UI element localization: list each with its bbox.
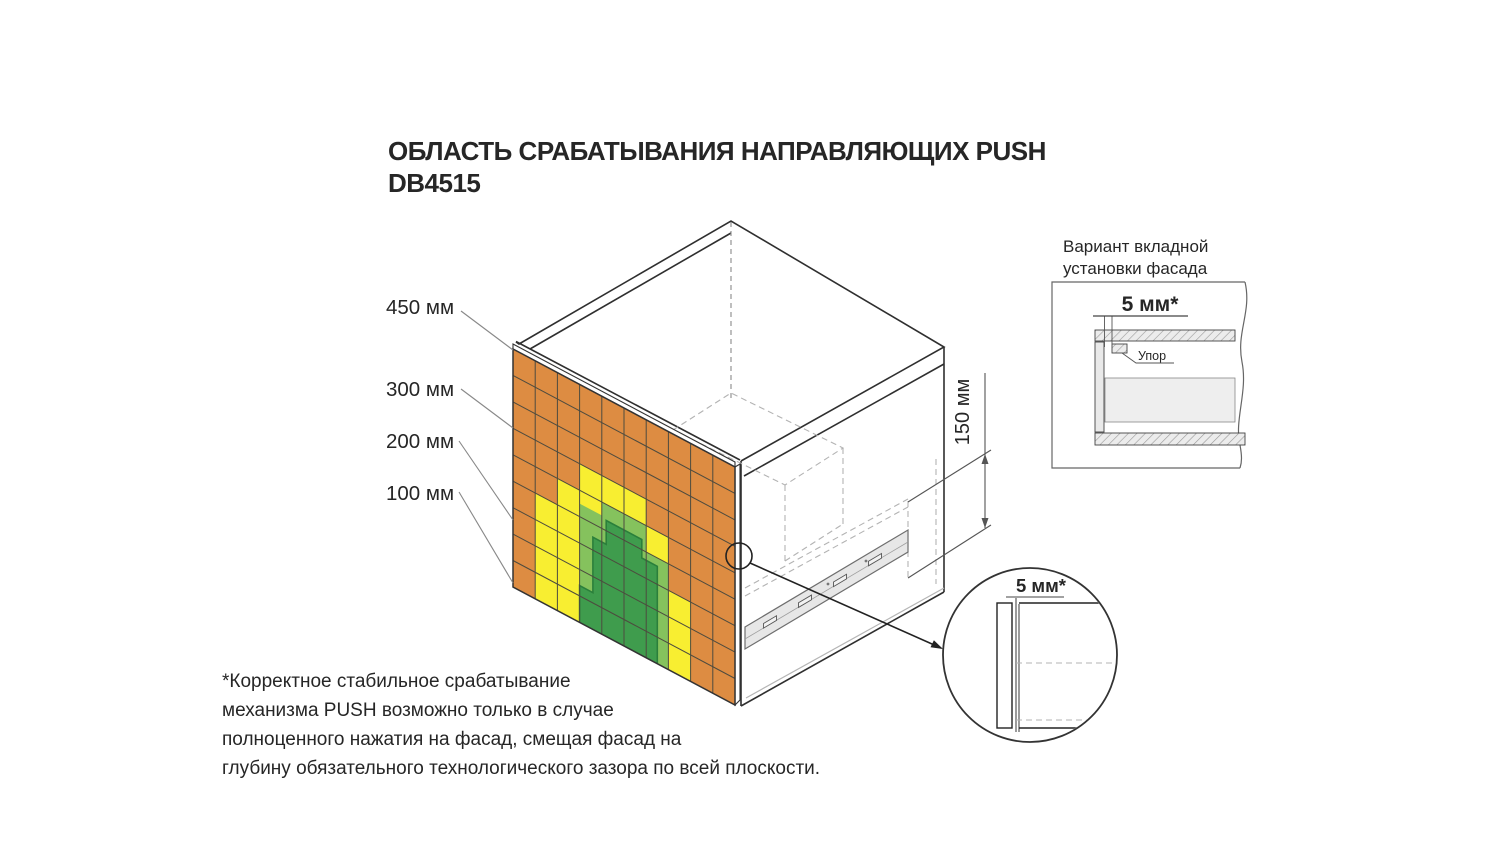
cabinet-top-inner-left-edge [530,233,731,349]
inset-stop-block [1112,344,1127,353]
cabinet-top-inner-right-edge [744,364,944,476]
arrow-down [982,518,989,528]
inset-facade-panel [1095,342,1104,432]
drawer-slide [745,530,908,649]
cabinet-bottom-right-edge [741,592,944,706]
inset-title-line2: установки фасада [1063,259,1208,278]
footnote-line2: механизма PUSH возможно только в случае [222,700,614,721]
inset-title-line1: Вариант вкладной [1063,237,1208,256]
slide-screw-hole [827,583,830,586]
stop-block-label: Упор [1138,349,1166,363]
gap-detail-circle: 5 мм* [943,568,1117,742]
zone-label-100: 100 мм [386,482,454,505]
page-title-line2: DB4515 [388,168,480,198]
inset-bottom-panel-section [1095,433,1245,445]
side-height-dimension: 150 мм [908,373,991,578]
facade-panel-section [997,603,1012,728]
zone-label-200: 200 мм [386,430,454,453]
dimension-150mm: 150 мм [952,379,974,445]
inset-mount-detail: Вариант вкладной установки фасада Упор 5… [1052,237,1247,468]
inset-gap-dimension: 5 мм* [1122,293,1180,316]
page-title-line1: ОБЛАСТЬ СРАБАТЫВАНИЯ НАПРАВЛЯЮЩИХ PUSH [388,136,1046,166]
zone-label-450: 450 мм [386,296,454,319]
footnote-line4: глубину обязательного технологического з… [222,758,820,779]
activation-area-panel [513,344,740,705]
inset-drawer-section [1105,378,1235,422]
drawer-slide-body [745,530,908,649]
inset-top-panel-section [1095,330,1235,341]
footnote-line1: *Корректное стабильное срабатывание [222,671,571,692]
zone-label-300: 300 мм [386,378,454,401]
zone-labels: 450 мм 300 мм 200 мм 100 мм [386,296,513,583]
slide-screw-hole [865,560,868,563]
push-guide-activation-diagram: ОБЛАСТЬ СРАБАТЫВАНИЯ НАПРАВЛЯЮЩИХ PUSH D… [0,0,1500,844]
detail-gap-dimension: 5 мм* [1016,575,1067,596]
callout-arrowhead [931,640,944,649]
callout-source-circle [726,543,752,569]
footnote-line3: полноценного нажатия на фасад, смещая фа… [222,729,682,750]
diagram-canvas: ОБЛАСТЬ СРАБАТЫВАНИЯ НАПРАВЛЯЮЩИХ PUSH D… [0,0,1500,844]
